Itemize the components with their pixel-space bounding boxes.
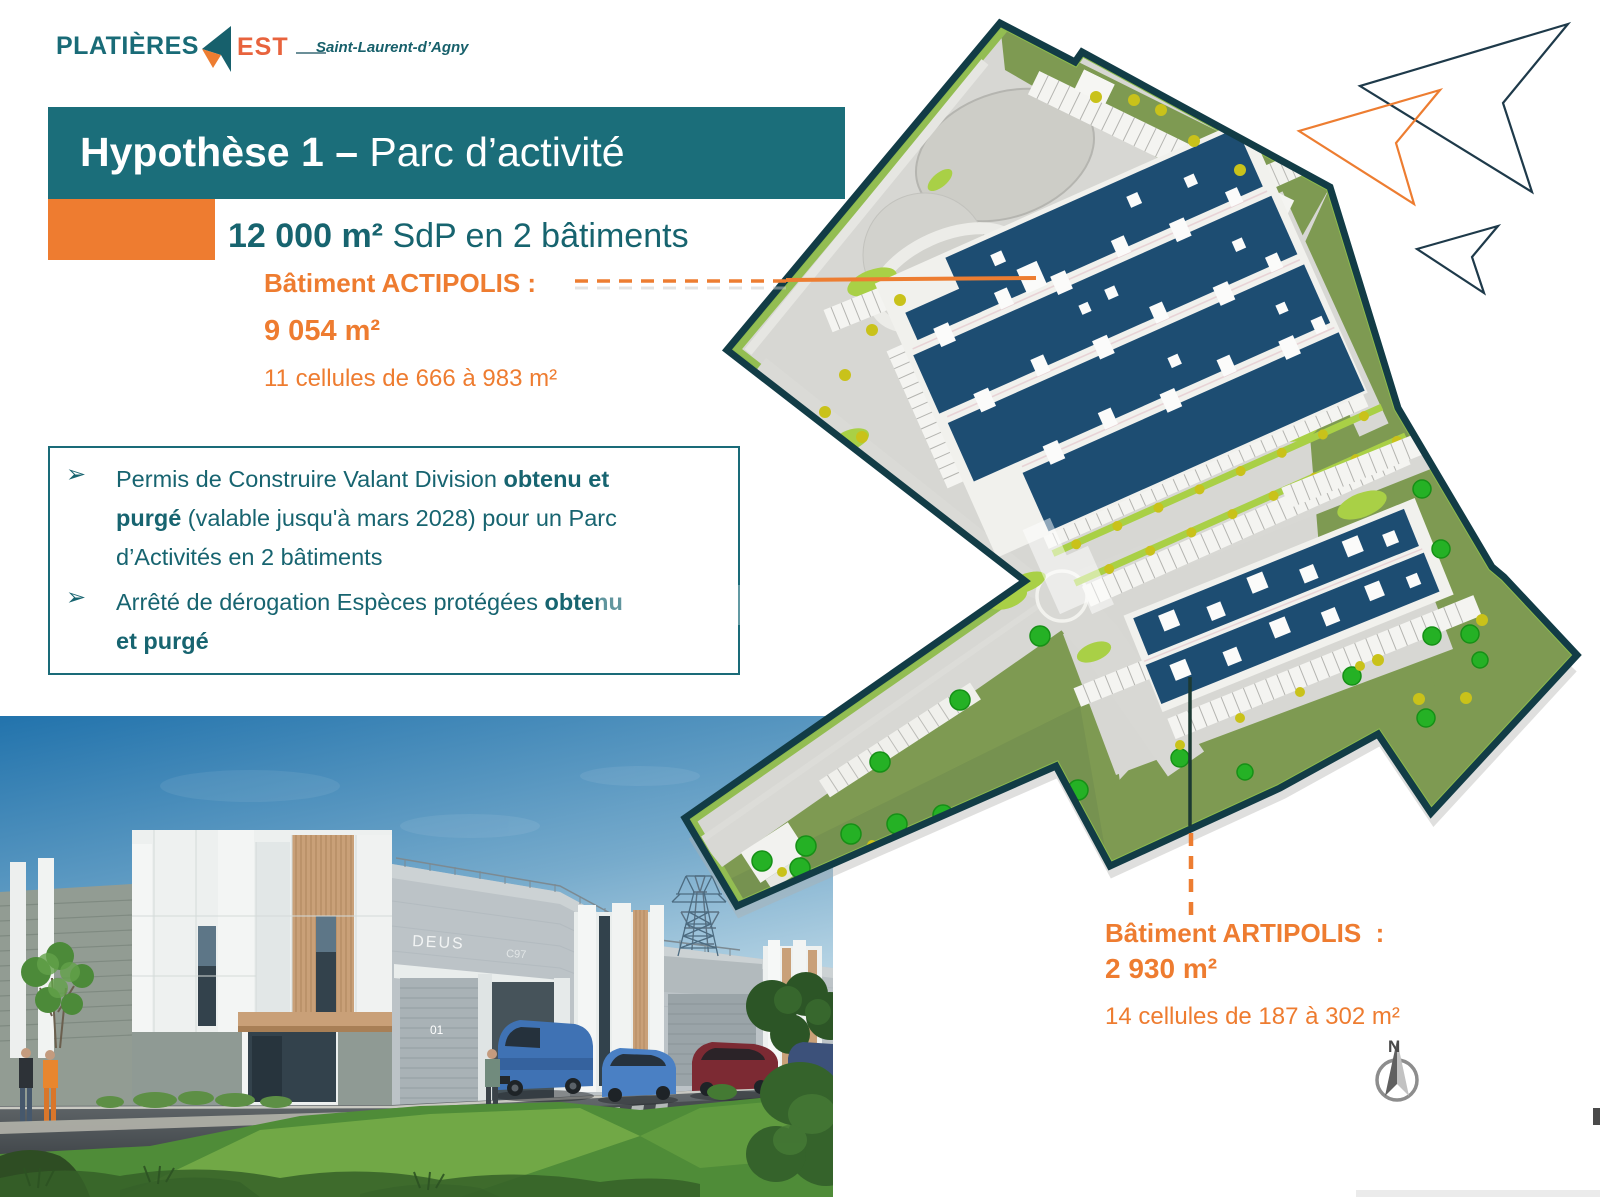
svg-text:N: N bbox=[1388, 1037, 1400, 1056]
